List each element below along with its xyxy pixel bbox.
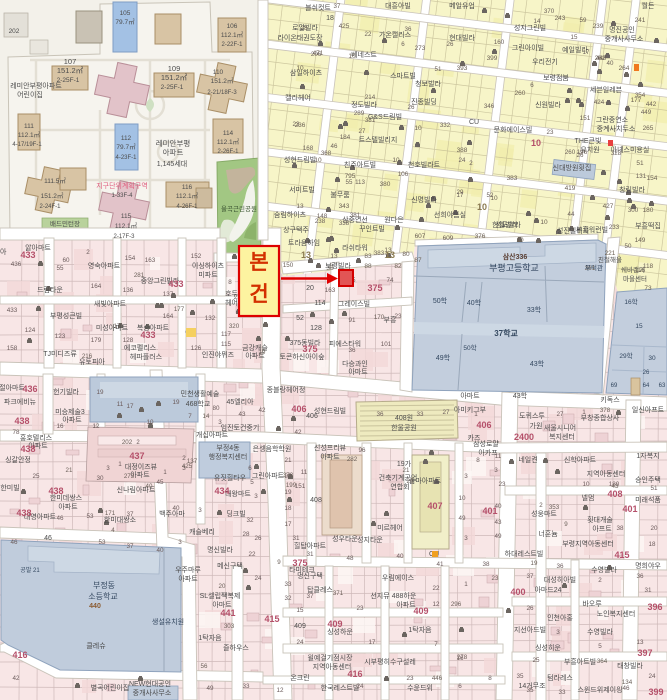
svg-text:82: 82 <box>394 263 402 270</box>
svg-text:137: 137 <box>187 458 198 465</box>
svg-text:8: 8 <box>488 675 492 682</box>
svg-text:캘리헤어: 캘리헤어 <box>285 93 311 102</box>
svg-text:115: 115 <box>121 213 132 220</box>
svg-text:2400: 2400 <box>514 432 534 442</box>
svg-text:26: 26 <box>407 478 414 485</box>
svg-text:383: 383 <box>507 175 518 182</box>
svg-text:35: 35 <box>526 687 534 694</box>
svg-text:28: 28 <box>242 531 250 538</box>
svg-text:436: 436 <box>22 384 37 394</box>
svg-text:수영빌라: 수영빌라 <box>591 565 617 574</box>
svg-text:1,145세대: 1,145세대 <box>157 159 187 168</box>
svg-text:딩크빌: 딩크빌 <box>226 509 245 518</box>
svg-text:창림빌라: 창림빌라 <box>619 185 645 194</box>
svg-text:23: 23 <box>293 121 300 128</box>
svg-text:370: 370 <box>544 8 555 15</box>
svg-text:151: 151 <box>295 483 306 490</box>
svg-text:149: 149 <box>635 237 646 244</box>
svg-text:스윈드위제이읭: 스윈드위제이읭 <box>577 685 622 694</box>
svg-text:15: 15 <box>635 323 643 330</box>
svg-text:쉐바랜기: 쉐바랜기 <box>621 265 645 274</box>
svg-text:클레슈: 클레슈 <box>86 641 106 650</box>
svg-text:171: 171 <box>105 510 116 517</box>
svg-text:33: 33 <box>416 411 424 418</box>
svg-text:115: 115 <box>221 341 232 348</box>
svg-text:123: 123 <box>55 333 66 340</box>
svg-text:243: 243 <box>555 15 566 22</box>
svg-text:440: 440 <box>89 603 101 610</box>
svg-text:새빛아파트: 새빛아파트 <box>94 299 127 308</box>
svg-text:2: 2 <box>182 455 186 462</box>
svg-text:260: 260 <box>515 90 526 97</box>
svg-text:성현드림빌: 성현드림빌 <box>284 155 316 164</box>
svg-text:40: 40 <box>607 60 614 67</box>
svg-text:레미안부평아파트: 레미안부평아파트 <box>10 81 62 90</box>
svg-text:우리전기: 우리전기 <box>532 57 558 66</box>
svg-text:10: 10 <box>414 125 422 132</box>
svg-text:353: 353 <box>549 504 560 511</box>
svg-text:609: 609 <box>443 235 454 242</box>
svg-text:59: 59 <box>580 17 587 24</box>
svg-text:어린이집: 어린이집 <box>17 90 43 99</box>
svg-text:33: 33 <box>242 683 250 690</box>
svg-text:4-26F-1: 4-26F-1 <box>176 204 198 210</box>
svg-text:성우타운: 성우타운 <box>332 534 358 543</box>
svg-text:164: 164 <box>163 313 174 320</box>
svg-text:278: 278 <box>457 654 468 661</box>
svg-text:12: 12 <box>92 423 100 430</box>
svg-text:23: 23 <box>394 313 402 320</box>
svg-text:49: 49 <box>458 515 466 522</box>
svg-text:63: 63 <box>659 383 666 389</box>
svg-text:273: 273 <box>124 473 135 480</box>
svg-text:아파트: 아파트 <box>163 147 184 157</box>
svg-text:10: 10 <box>582 481 590 488</box>
svg-text:승인주택: 승인주택 <box>635 475 661 484</box>
svg-text:우주마루: 우주마루 <box>175 565 201 574</box>
svg-text:11: 11 <box>495 453 502 460</box>
svg-text:136: 136 <box>123 287 134 294</box>
svg-text:427: 427 <box>603 203 614 210</box>
svg-text:419: 419 <box>565 185 576 192</box>
svg-text:선희야톰실: 선희야톰실 <box>434 210 466 219</box>
svg-text:607: 607 <box>415 233 426 240</box>
svg-text:15: 15 <box>571 34 578 41</box>
svg-text:3: 3 <box>464 535 468 542</box>
svg-text:13: 13 <box>301 250 311 260</box>
svg-text:40: 40 <box>494 503 502 510</box>
svg-text:151.2㎡: 151.2㎡ <box>211 76 234 85</box>
svg-text:키독스: 키독스 <box>600 395 620 404</box>
svg-text:10: 10 <box>296 65 304 72</box>
svg-text:29학: 29학 <box>619 351 632 360</box>
svg-text:12: 12 <box>276 687 284 694</box>
svg-text:2-17F-3: 2-17F-3 <box>113 234 135 240</box>
svg-text:18: 18 <box>326 15 334 22</box>
svg-text:지역아동센터: 지역아동센터 <box>587 469 626 478</box>
svg-text:17: 17 <box>284 521 292 528</box>
svg-text:1자복지: 1자복지 <box>636 451 659 460</box>
svg-text:복지센터: 복지센터 <box>549 432 575 441</box>
svg-text:399: 399 <box>648 687 663 697</box>
svg-text:아미키그부: 아미키그부 <box>454 405 487 414</box>
svg-text:세븐일레븐: 세븐일레븐 <box>590 85 623 94</box>
svg-text:438: 438 <box>16 508 31 518</box>
svg-text:민천생활예술: 민천생활예술 <box>181 389 220 398</box>
svg-text:12: 12 <box>432 601 440 608</box>
svg-text:태창빌라: 태창빌라 <box>617 661 643 670</box>
svg-text:36: 36 <box>405 26 412 33</box>
svg-text:37: 37 <box>334 3 341 10</box>
svg-text:24: 24 <box>459 157 466 164</box>
svg-text:3: 3 <box>198 507 202 514</box>
svg-text:41: 41 <box>436 561 444 568</box>
svg-text:381: 381 <box>365 117 376 124</box>
svg-text:메일유업: 메일유업 <box>449 1 475 10</box>
svg-text:2-25F-1: 2-25F-1 <box>57 77 80 84</box>
svg-text:2-26F-1: 2-26F-1 <box>217 149 239 155</box>
svg-text:37학교: 37학교 <box>494 328 518 338</box>
svg-text:111.5㎡: 111.5㎡ <box>44 176 66 185</box>
svg-text:1-33F-4: 1-33F-4 <box>111 193 133 199</box>
svg-text:그란중연소: 그란중연소 <box>596 116 629 124</box>
svg-text:88: 88 <box>364 263 372 270</box>
svg-text:116: 116 <box>182 184 193 191</box>
svg-text:110: 110 <box>213 69 224 76</box>
svg-text:은셍음학학원: 은셍음학학원 <box>253 444 292 453</box>
svg-text:15: 15 <box>296 607 304 614</box>
svg-text:수영빌라: 수영빌라 <box>587 627 613 636</box>
svg-text:너훈늄: 너훈늄 <box>538 529 558 538</box>
svg-text:1탁자음: 1탁자음 <box>408 625 432 634</box>
svg-text:434: 434 <box>214 486 229 496</box>
svg-text:18: 18 <box>648 541 656 548</box>
svg-text:텀라레스: 텀라레스 <box>547 673 573 682</box>
svg-text:69: 69 <box>611 383 618 389</box>
svg-text:112.1㎡: 112.1㎡ <box>176 191 199 200</box>
svg-text:196: 196 <box>577 149 588 156</box>
svg-text:52: 52 <box>487 192 494 199</box>
svg-text:6: 6 <box>401 41 405 48</box>
svg-text:하대레스트빌: 하대레스트빌 <box>505 549 544 558</box>
svg-text:무덕관: 무덕관 <box>585 263 603 272</box>
svg-text:27: 27 <box>556 411 564 418</box>
svg-text:피에스타워: 피에스타워 <box>329 339 361 348</box>
svg-text:112: 112 <box>121 135 132 142</box>
svg-text:154: 154 <box>125 255 136 262</box>
svg-text:유짓힐타우: 유짓힐타우 <box>214 473 247 482</box>
svg-text:성지타운: 성지타운 <box>357 535 383 544</box>
svg-text:436: 436 <box>11 261 22 268</box>
svg-text:10: 10 <box>531 138 541 148</box>
svg-text:433: 433 <box>140 330 155 340</box>
svg-text:112.1㎡: 112.1㎡ <box>115 221 138 230</box>
svg-text:396: 396 <box>647 602 662 612</box>
svg-text:131: 131 <box>636 173 647 180</box>
svg-text:151.2㎡: 151.2㎡ <box>57 66 84 75</box>
svg-text:383: 383 <box>374 250 385 257</box>
svg-text:128: 128 <box>123 337 134 344</box>
svg-text:415: 415 <box>614 550 629 560</box>
svg-text:별곡어린이집: 별곡어린이집 <box>91 683 130 692</box>
svg-text:우림에이스: 우림에이스 <box>382 573 415 582</box>
svg-text:32: 32 <box>284 595 292 602</box>
svg-text:132: 132 <box>205 315 216 322</box>
svg-text:216: 216 <box>82 353 93 360</box>
svg-text:라쉬타워: 라쉬타워 <box>342 243 368 252</box>
svg-text:천호빌라트: 천호빌라트 <box>408 160 441 169</box>
svg-text:9: 9 <box>277 559 281 566</box>
svg-text:미성아파트: 미성아파트 <box>96 323 129 332</box>
svg-text:179: 179 <box>91 337 102 344</box>
svg-text:50: 50 <box>625 243 632 250</box>
svg-text:정도빌라: 정도빌라 <box>351 100 377 109</box>
svg-text:40: 40 <box>396 553 404 560</box>
svg-text:16: 16 <box>56 423 64 430</box>
svg-text:20: 20 <box>306 285 314 292</box>
svg-text:윌예걸기점시장: 윌예걸기점시장 <box>307 653 353 662</box>
svg-text:수윤드위: 수윤드위 <box>407 684 433 692</box>
svg-text:22: 22 <box>365 31 372 38</box>
svg-text:개십아파트: 개십아파트 <box>196 430 229 439</box>
svg-text:56: 56 <box>201 663 208 670</box>
svg-text:449: 449 <box>641 109 652 116</box>
svg-text:111: 111 <box>24 123 34 130</box>
svg-text:55: 55 <box>346 179 353 186</box>
svg-text:중개사사두소: 중개사사두소 <box>605 34 644 43</box>
svg-text:78: 78 <box>12 429 20 436</box>
svg-text:1탁자음: 1탁자음 <box>198 633 222 642</box>
svg-text:238: 238 <box>315 218 326 225</box>
svg-text:23: 23 <box>498 481 506 488</box>
svg-text:373: 373 <box>283 472 294 479</box>
svg-text:10: 10 <box>348 53 356 60</box>
svg-text:221: 221 <box>605 250 616 257</box>
svg-text:파크에비뉴: 파크에비뉴 <box>4 397 37 406</box>
svg-text:3: 3 <box>556 629 560 636</box>
svg-text:168: 168 <box>303 145 314 152</box>
svg-text:46: 46 <box>331 143 338 150</box>
svg-text:265: 265 <box>643 125 654 132</box>
svg-text:24: 24 <box>356 683 364 690</box>
svg-text:THE큰빛: THE큰빛 <box>575 136 602 145</box>
svg-text:그린아파트: 그린아파트 <box>252 471 285 480</box>
svg-text:397: 397 <box>637 648 652 658</box>
svg-text:청보빌라: 청보빌라 <box>415 79 441 88</box>
svg-text:36: 36 <box>348 347 356 354</box>
svg-text:성진빌리지: 성진빌리지 <box>557 226 589 235</box>
svg-text:6: 6 <box>458 683 462 690</box>
svg-text:233: 233 <box>609 224 620 231</box>
svg-text:409: 409 <box>327 619 342 629</box>
svg-text:2-24F-1: 2-24F-1 <box>39 204 61 210</box>
svg-text:명진공인: 명진공인 <box>609 25 635 34</box>
svg-text:율곡근린공원: 율곡근린공원 <box>221 204 257 213</box>
svg-text:스마트빌: 스마트빌 <box>390 71 416 80</box>
svg-text:라이온태권도장: 라이온태권도장 <box>277 33 323 42</box>
svg-text:성지그린빌: 성지그린빌 <box>514 23 546 32</box>
svg-text:14: 14 <box>534 18 541 25</box>
svg-text:25: 25 <box>532 657 540 664</box>
svg-text:공발 21: 공발 21 <box>20 566 40 574</box>
svg-text:신성프리뷰: 신성프리뷰 <box>314 443 347 452</box>
svg-text:184: 184 <box>340 134 351 141</box>
svg-text:416: 416 <box>12 650 27 660</box>
svg-text:46: 46 <box>10 539 18 546</box>
svg-text:83: 83 <box>364 253 372 260</box>
svg-text:393: 393 <box>457 65 468 72</box>
svg-text:80: 80 <box>402 251 410 258</box>
svg-text:346: 346 <box>484 103 495 110</box>
svg-text:424: 424 <box>594 99 605 106</box>
svg-text:22: 22 <box>432 585 440 592</box>
svg-text:407: 407 <box>427 501 442 511</box>
svg-text:87: 87 <box>414 257 422 264</box>
svg-text:31: 31 <box>292 535 300 542</box>
svg-text:인진야뮈즈: 인진야뮈즈 <box>202 350 235 359</box>
svg-text:343: 343 <box>339 203 350 210</box>
svg-text:300: 300 <box>628 207 639 214</box>
svg-text:45엘리아: 45엘리아 <box>226 397 254 406</box>
svg-text:미파트: 미파트 <box>198 270 218 279</box>
svg-text:8: 8 <box>476 457 480 464</box>
svg-text:415: 415 <box>264 614 279 624</box>
svg-text:메신구택: 메신구택 <box>217 561 243 570</box>
svg-text:380: 380 <box>380 181 391 188</box>
svg-text:이싱하이츠: 이싱하이츠 <box>192 261 225 270</box>
svg-text:60: 60 <box>62 257 70 264</box>
svg-text:42: 42 <box>294 429 302 436</box>
svg-text:10: 10 <box>458 495 466 502</box>
svg-text:30: 30 <box>648 355 656 362</box>
svg-text:442: 442 <box>646 101 657 108</box>
svg-text:158: 158 <box>7 345 18 352</box>
svg-text:13: 13 <box>636 639 644 646</box>
svg-text:불무룸: 불무룸 <box>330 190 350 199</box>
svg-text:33: 33 <box>558 689 566 696</box>
svg-text:406: 406 <box>306 413 318 420</box>
svg-text:28: 28 <box>301 25 308 32</box>
svg-text:도퀴스투: 도퀴스투 <box>519 411 545 420</box>
svg-text:노인복지센터: 노인복지센터 <box>597 609 636 618</box>
svg-text:2-21/18F-3: 2-21/18F-3 <box>207 90 237 96</box>
svg-text:진종빌딩: 진종빌딩 <box>411 97 437 106</box>
svg-text:마을센터: 마을센터 <box>623 274 647 283</box>
svg-text:199: 199 <box>286 482 297 489</box>
svg-text:5: 5 <box>598 643 602 650</box>
svg-text:레미안부평: 레미안부평 <box>156 138 191 148</box>
svg-text:19: 19 <box>96 389 104 396</box>
svg-text:아파트: 아파트 <box>320 452 340 461</box>
svg-text:49학: 49학 <box>436 353 451 362</box>
svg-text:50학: 50학 <box>463 343 476 352</box>
svg-text:38: 38 <box>616 525 624 532</box>
svg-text:79.7㎡: 79.7㎡ <box>116 142 136 151</box>
svg-text:3: 3 <box>254 493 258 500</box>
svg-text:50학: 50학 <box>433 296 448 305</box>
svg-text:177: 177 <box>174 306 185 313</box>
svg-text:46: 46 <box>622 685 630 692</box>
svg-text:31: 31 <box>644 587 652 594</box>
svg-text:13: 13 <box>385 250 395 260</box>
svg-text:신원빌라: 신원빌라 <box>535 100 561 109</box>
svg-text:126: 126 <box>191 345 202 352</box>
svg-text:22: 22 <box>248 551 256 558</box>
svg-text:53: 53 <box>86 513 94 520</box>
svg-text:354: 354 <box>635 92 646 99</box>
svg-text:10: 10 <box>314 157 322 164</box>
svg-text:117: 117 <box>221 331 232 338</box>
svg-text:신대방원횟집: 신대방원횟집 <box>553 163 592 172</box>
svg-text:24: 24 <box>296 639 304 646</box>
svg-text:25: 25 <box>32 473 40 480</box>
svg-text:114: 114 <box>223 130 234 137</box>
svg-text:생설유치원: 생설유치원 <box>152 617 184 626</box>
svg-text:3: 3 <box>494 467 498 474</box>
svg-text:438: 438 <box>14 416 29 426</box>
svg-text:대정이즈뷰: 대정이즈뷰 <box>125 462 158 471</box>
svg-text:96: 96 <box>358 447 366 454</box>
svg-text:37: 37 <box>126 511 134 518</box>
svg-text:43학: 43학 <box>530 359 545 368</box>
svg-text:114: 114 <box>314 300 325 307</box>
svg-text:21: 21 <box>66 467 73 474</box>
svg-text:23: 23 <box>356 605 364 612</box>
svg-text:381: 381 <box>350 212 361 219</box>
svg-text:새울시니어: 새울시니어 <box>544 423 576 432</box>
svg-text:17: 17 <box>126 403 134 410</box>
svg-text:한미빌: 한미빌 <box>0 483 19 492</box>
svg-text:20: 20 <box>650 525 658 532</box>
svg-text:42: 42 <box>12 675 20 682</box>
svg-text:32: 32 <box>246 517 254 524</box>
svg-text:5: 5 <box>250 479 254 486</box>
svg-text:107: 107 <box>64 57 77 66</box>
svg-text:260: 260 <box>565 149 576 156</box>
svg-text:134: 134 <box>622 679 633 686</box>
svg-text:삼일하이츠: 삼일하이츠 <box>290 68 323 77</box>
svg-text:48: 48 <box>346 555 354 562</box>
svg-text:388: 388 <box>457 147 468 154</box>
svg-text:아마드24: 아마드24 <box>534 585 561 594</box>
svg-text:부평고등학교: 부평고등학교 <box>489 263 539 273</box>
svg-text:408: 408 <box>310 497 322 504</box>
svg-text:부창종합상사: 부창종합상사 <box>581 413 620 422</box>
svg-text:명신빌라: 명신빌라 <box>207 545 233 554</box>
svg-text:17: 17 <box>457 192 464 199</box>
svg-text:신학아파트: 신학아파트 <box>564 455 597 464</box>
svg-text:9: 9 <box>564 521 568 528</box>
svg-text:433: 433 <box>168 279 183 289</box>
svg-text:서미트빌: 서미트빌 <box>289 185 315 194</box>
svg-text:그레이스빌: 그레이스빌 <box>338 299 370 308</box>
svg-text:17: 17 <box>114 323 121 330</box>
svg-text:33: 33 <box>284 581 292 588</box>
svg-text:128: 128 <box>310 325 322 332</box>
svg-text:43: 43 <box>612 483 619 490</box>
svg-text:44: 44 <box>568 211 575 218</box>
svg-text:378: 378 <box>600 407 611 414</box>
svg-text:332: 332 <box>440 122 451 129</box>
svg-text:절아: 절아 <box>0 247 7 256</box>
svg-text:TJ미디즈류: TJ미디즈류 <box>43 349 77 358</box>
svg-text:부흥아트빌: 부흥아트빌 <box>564 657 596 666</box>
svg-text:406: 406 <box>476 420 491 430</box>
svg-text:401: 401 <box>622 504 637 514</box>
svg-text:170: 170 <box>374 314 385 321</box>
svg-text:배드민턴장: 배드민턴장 <box>50 219 80 228</box>
svg-text:부평성큰빌: 부평성큰빌 <box>50 311 82 320</box>
